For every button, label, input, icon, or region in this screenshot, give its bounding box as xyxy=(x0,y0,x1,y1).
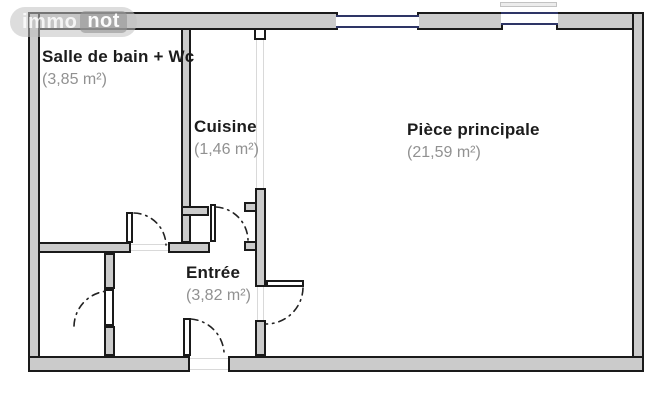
door-arc xyxy=(74,291,110,326)
room-label-bathroom: Salle de bain + Wc (3,85 m²) xyxy=(42,46,194,91)
room-area-kitchen: (1,46 m²) xyxy=(194,139,259,161)
room-name-bathroom: Salle de bain + Wc xyxy=(42,46,194,69)
room-name-entry: Entrée xyxy=(186,262,251,285)
room-area-bathroom: (3,85 m²) xyxy=(42,69,194,91)
room-area-entry: (3,82 m²) xyxy=(186,285,251,307)
immonot-logo: immo not xyxy=(10,7,137,37)
logo-text-immo: immo xyxy=(22,11,77,34)
logo-text-not: not xyxy=(80,11,127,33)
room-label-main: Pièce principale (21,59 m²) xyxy=(407,119,540,164)
room-name-main: Pièce principale xyxy=(407,119,540,142)
door-arc xyxy=(191,319,224,352)
room-label-kitchen: Cuisine (1,46 m²) xyxy=(194,116,259,161)
door-arc xyxy=(216,207,248,240)
floorplan: Salle de bain + Wc (3,85 m²) Cuisine (1,… xyxy=(0,0,671,400)
room-label-entry: Entrée (3,82 m²) xyxy=(186,262,251,307)
room-name-kitchen: Cuisine xyxy=(194,116,259,139)
door-arc xyxy=(266,288,303,324)
door-arc xyxy=(134,213,166,245)
room-area-main: (21,59 m²) xyxy=(407,142,540,164)
